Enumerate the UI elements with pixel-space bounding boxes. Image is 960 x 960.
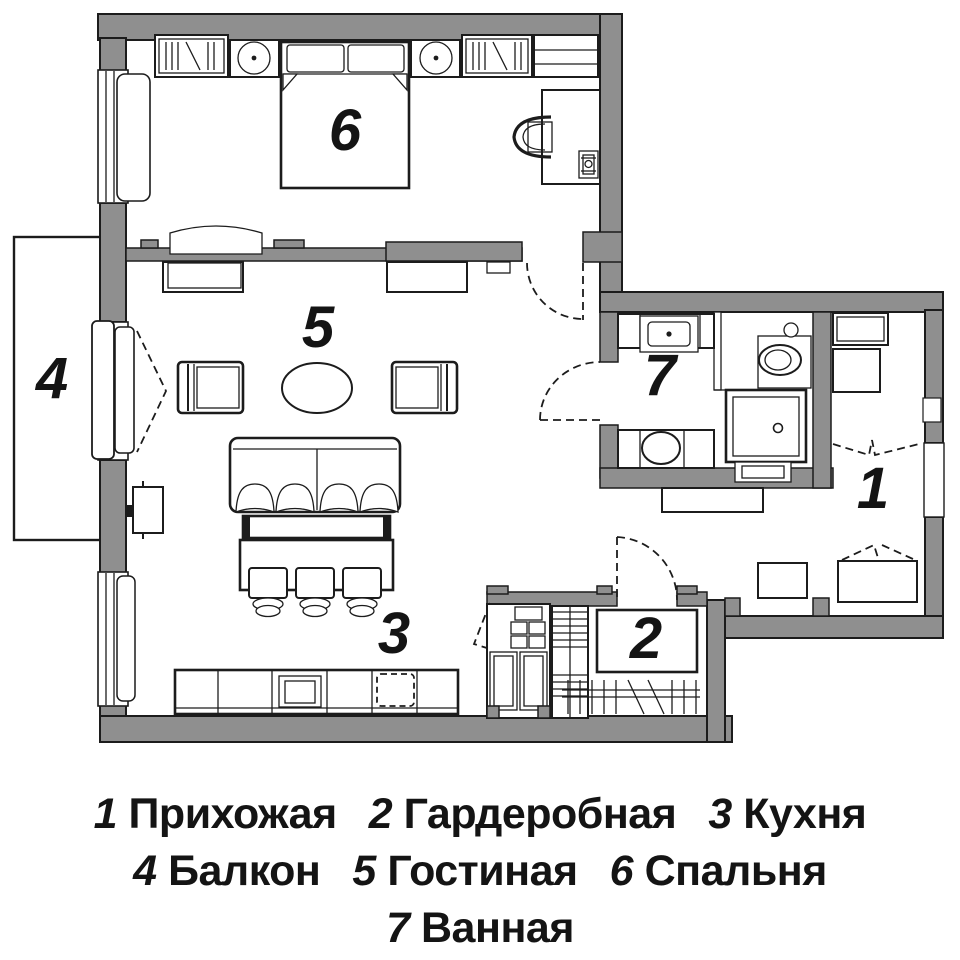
wall-niche (923, 398, 941, 422)
legend-line: 4Балкон5Гостиная6Спальня (0, 843, 960, 900)
stool (249, 568, 287, 617)
bathroom-bench (662, 488, 763, 512)
kitchen-furniture (175, 603, 550, 718)
sideboard (163, 262, 243, 292)
hall-cabinet (833, 349, 880, 392)
room-label-living: 5 (302, 295, 335, 360)
floor-plan: 6 5 4 3 2 7 1 (0, 0, 960, 772)
nightstand-right (411, 40, 460, 77)
hall-cabinet-top (833, 313, 888, 345)
wardrobe-room-furniture (552, 606, 700, 718)
legend-name: Прихожая (129, 790, 337, 838)
legend-line: 7Ванная (0, 900, 960, 957)
radiator (117, 74, 150, 201)
bedroom-door (527, 263, 583, 320)
hall-bench (838, 545, 917, 602)
wardrobe-left (155, 35, 228, 77)
stool (343, 568, 381, 617)
cabinet (387, 262, 510, 292)
sink-counter (618, 430, 714, 468)
balcony-door (92, 321, 166, 460)
shoe-cabinet (758, 563, 807, 598)
wardrobe-right (462, 35, 532, 77)
legend-entry-balcony: 4Балкон (133, 843, 320, 900)
legend-entry-bedroom: 6Спальня (610, 843, 827, 900)
tall-unit (474, 603, 550, 718)
legend-entry-kitchen: 3Кухня (708, 786, 866, 843)
armchair-right (392, 362, 457, 413)
bedroom-furniture (155, 35, 600, 254)
floor-plan-page: 6 5 4 3 2 7 1 1Прихожая2Гардеробная3Кухн… (0, 0, 960, 960)
shelving-column (552, 606, 588, 718)
room-label-hallway: 1 (857, 456, 889, 521)
legend-name: Балкон (168, 847, 320, 895)
room-label-kitchen: 3 (378, 601, 410, 666)
room-label-bedroom: 6 (329, 98, 362, 163)
legend-number: 3 (708, 790, 732, 838)
legend-name: Спальня (645, 847, 827, 895)
entrance-opening (923, 398, 944, 517)
legend-number: 2 (369, 790, 393, 838)
legend-name: Ванная (421, 904, 574, 952)
hall-folding-door (833, 440, 919, 455)
nightstand-left (230, 40, 279, 77)
legend-entry-living: 5Гостиная (352, 843, 577, 900)
bench-foot-of-bed (170, 226, 262, 254)
sofa (230, 438, 400, 512)
legend-entry-bathroom: 7Ванная (386, 900, 574, 957)
legend-number: 7 (386, 904, 410, 952)
toilet (758, 323, 811, 388)
tv-mount (126, 505, 134, 517)
desk (542, 90, 600, 184)
legend: 1Прихожая2Гардеробная3Кухня 4Балкон5Гост… (0, 772, 960, 957)
room-label-wardrobe: 2 (629, 606, 662, 671)
desk-lamp (579, 151, 598, 178)
shower-threshold (735, 462, 791, 482)
wardrobe-door (617, 537, 677, 600)
legend-line: 1Прихожая2Гардеробная3Кухня (0, 786, 960, 843)
legend-number: 1 (94, 790, 118, 838)
legend-name: Гардеробная (404, 790, 677, 838)
legend-entry-hallway: 1Прихожая (94, 786, 337, 843)
legend-number: 5 (352, 847, 376, 895)
stools (249, 568, 381, 617)
bathroom-door (540, 362, 600, 420)
stool (296, 568, 334, 617)
legend-entry-wardrobe: 2Гардеробная (369, 786, 677, 843)
legend-number: 4 (133, 847, 157, 895)
legend-name: Гостиная (387, 847, 577, 895)
legend-number: 6 (610, 847, 634, 895)
coffee-table (282, 363, 352, 413)
tv (126, 481, 163, 539)
armchair-left (178, 362, 243, 413)
window-living (98, 572, 135, 706)
shelf-unit (534, 35, 598, 77)
window-bedroom (98, 70, 150, 203)
room-label-bathroom: 7 (644, 343, 679, 408)
room-label-balcony: 4 (35, 346, 68, 411)
round-sink (642, 432, 680, 464)
legend-name: Кухня (743, 790, 866, 838)
console-table (243, 516, 390, 538)
kitchen-counter (175, 670, 458, 714)
